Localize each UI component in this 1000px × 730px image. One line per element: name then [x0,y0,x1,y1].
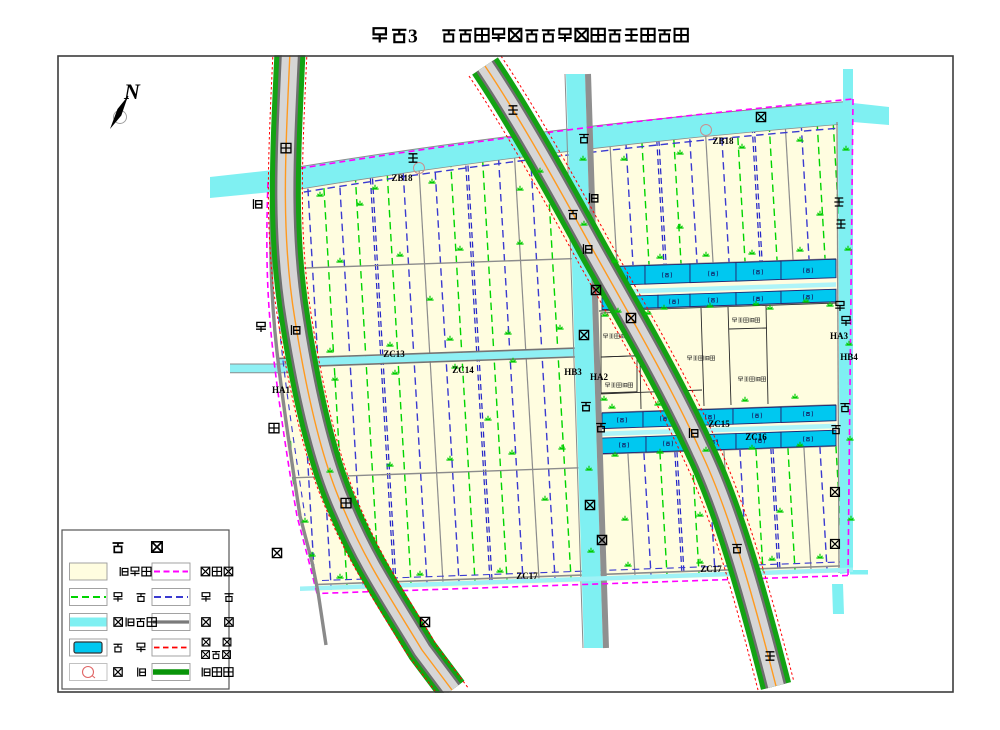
svg-text:HB3: HB3 [564,367,582,377]
svg-text:ZB18: ZB18 [712,136,734,146]
svg-text:ZC17: ZC17 [700,564,722,574]
svg-text:ZC14: ZC14 [452,365,474,375]
svg-text:ZC16: ZC16 [745,432,767,442]
svg-text:ZB18: ZB18 [391,173,413,183]
svg-text:HA1: HA1 [272,385,291,395]
svg-text:HA3: HA3 [830,331,849,341]
svg-text:HB4: HB4 [840,352,858,362]
svg-text:3: 3 [408,27,418,48]
svg-text:ZC17: ZC17 [516,571,538,581]
svg-text:ZC15: ZC15 [708,419,730,429]
svg-text:HA2: HA2 [590,372,609,382]
svg-text:ZC13: ZC13 [383,349,405,359]
